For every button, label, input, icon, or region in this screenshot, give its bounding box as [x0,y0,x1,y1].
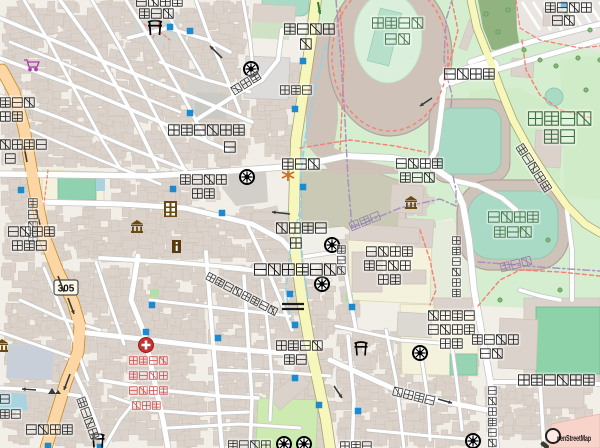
svg-text:penStreetMap: penStreetMap [557,434,591,443]
svg-text:305: 305 [58,284,75,295]
